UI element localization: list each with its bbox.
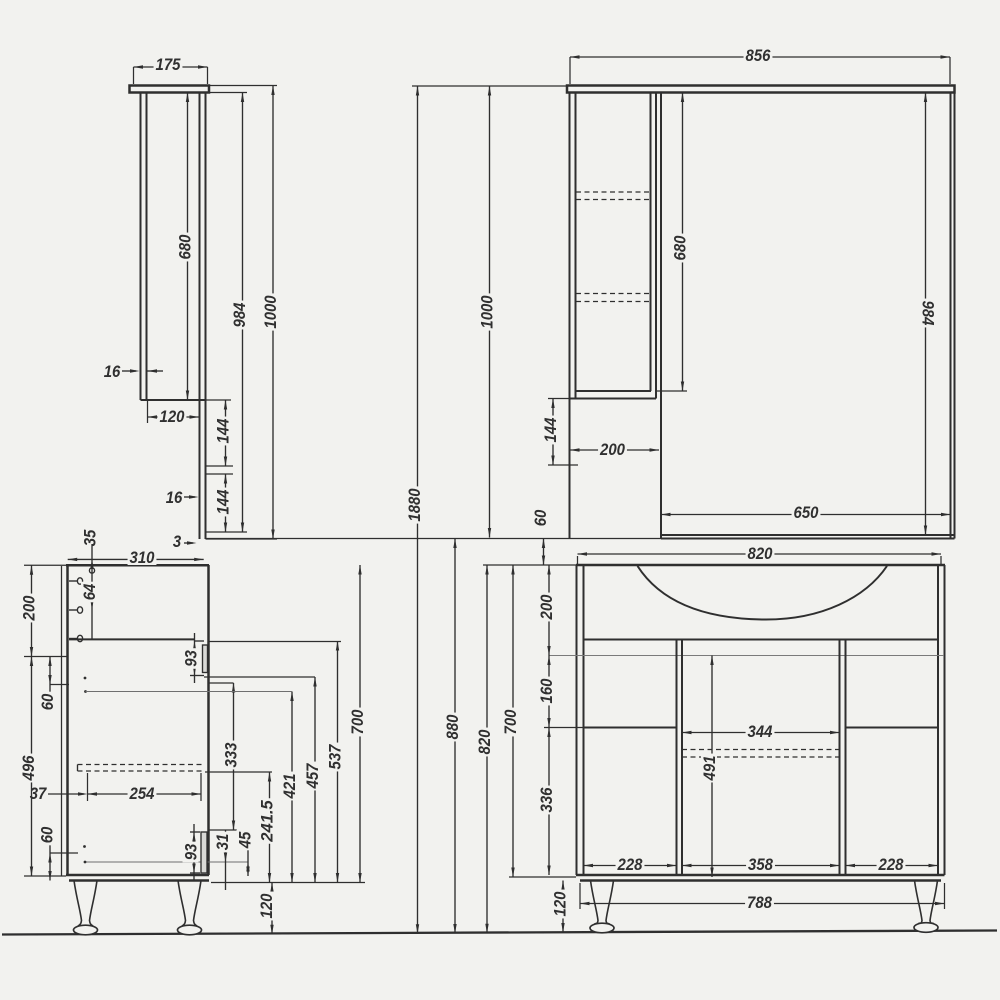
svg-text:856: 856 xyxy=(746,46,771,65)
svg-text:175: 175 xyxy=(156,55,181,74)
svg-text:144: 144 xyxy=(214,489,233,514)
svg-text:496: 496 xyxy=(19,755,38,781)
svg-text:1000: 1000 xyxy=(261,295,280,329)
svg-text:93: 93 xyxy=(182,843,201,860)
svg-text:421: 421 xyxy=(280,774,299,800)
svg-text:228: 228 xyxy=(617,855,643,874)
svg-text:60: 60 xyxy=(38,693,57,710)
svg-text:93: 93 xyxy=(182,650,201,667)
svg-text:336: 336 xyxy=(537,787,556,812)
svg-text:241.5: 241.5 xyxy=(258,800,277,843)
svg-text:60: 60 xyxy=(531,509,550,526)
svg-text:984: 984 xyxy=(230,302,249,327)
svg-text:680: 680 xyxy=(176,234,195,259)
svg-text:200: 200 xyxy=(599,440,625,459)
svg-text:537: 537 xyxy=(326,743,345,769)
svg-text:200: 200 xyxy=(20,595,39,621)
svg-text:880: 880 xyxy=(443,714,462,739)
svg-text:344: 344 xyxy=(748,722,773,741)
svg-text:120: 120 xyxy=(551,891,570,916)
svg-text:228: 228 xyxy=(878,855,904,874)
svg-text:16: 16 xyxy=(104,362,121,381)
svg-text:650: 650 xyxy=(794,503,819,522)
svg-text:200: 200 xyxy=(537,594,556,620)
svg-text:820: 820 xyxy=(475,729,494,754)
svg-text:160: 160 xyxy=(537,678,556,703)
svg-text:310: 310 xyxy=(130,548,155,567)
svg-text:491: 491 xyxy=(700,756,719,782)
svg-text:358: 358 xyxy=(748,855,773,874)
svg-text:333: 333 xyxy=(222,742,241,767)
svg-text:1880: 1880 xyxy=(405,488,424,522)
svg-text:820: 820 xyxy=(748,544,773,563)
svg-text:144: 144 xyxy=(214,418,233,443)
svg-text:788: 788 xyxy=(747,893,772,912)
svg-text:64: 64 xyxy=(80,583,99,600)
svg-text:457: 457 xyxy=(303,762,322,789)
svg-text:120: 120 xyxy=(257,893,276,918)
svg-text:3: 3 xyxy=(173,532,182,551)
svg-text:254: 254 xyxy=(129,784,155,803)
svg-text:120: 120 xyxy=(160,407,185,426)
svg-text:16: 16 xyxy=(166,488,183,507)
svg-text:35: 35 xyxy=(81,529,100,546)
svg-text:984: 984 xyxy=(919,301,938,326)
svg-text:700: 700 xyxy=(348,709,367,734)
svg-text:680: 680 xyxy=(671,235,690,260)
svg-text:45: 45 xyxy=(236,831,255,849)
svg-text:144: 144 xyxy=(541,417,560,442)
svg-text:700: 700 xyxy=(501,709,520,734)
svg-text:60: 60 xyxy=(38,826,57,843)
svg-text:1000: 1000 xyxy=(478,295,497,329)
svg-text:31: 31 xyxy=(213,834,232,851)
svg-text:37: 37 xyxy=(30,784,48,803)
